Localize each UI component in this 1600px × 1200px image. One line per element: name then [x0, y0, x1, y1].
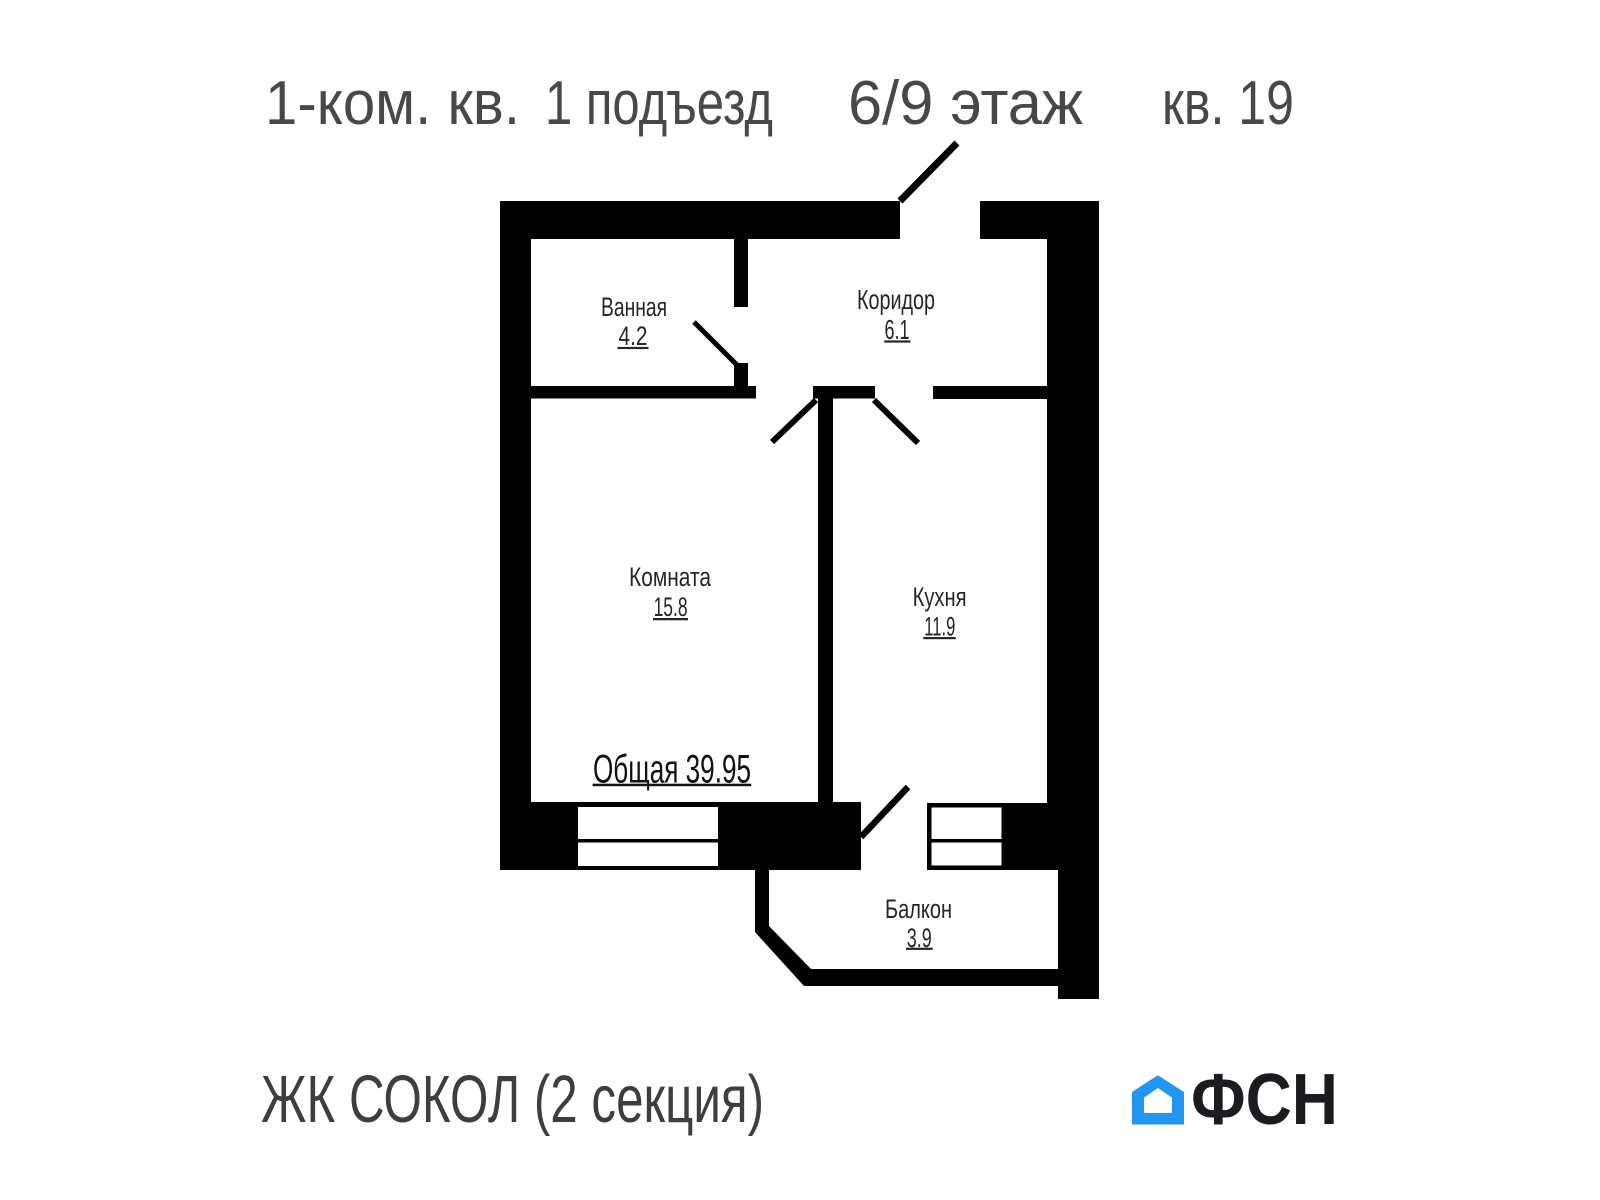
svg-text:ФСН: ФСН [1191, 1060, 1338, 1140]
svg-text:1-ком. кв.: 1-ком. кв. [265, 69, 520, 138]
svg-text:ЖК СОКОЛ (2 секция): ЖК СОКОЛ (2 секция) [261, 1062, 764, 1137]
svg-text:Балкон: Балкон [885, 894, 952, 924]
svg-text:кв. 19: кв. 19 [1162, 69, 1294, 138]
svg-text:11.9: 11.9 [924, 611, 955, 641]
svg-text:Коридор: Коридор [857, 284, 935, 315]
svg-text:Кухня: Кухня [913, 582, 967, 612]
svg-text:Комната: Комната [629, 562, 712, 592]
svg-text:6/9 этаж: 6/9 этаж [848, 69, 1084, 138]
svg-text:4.2: 4.2 [619, 321, 648, 351]
svg-text:15.8: 15.8 [654, 592, 688, 622]
svg-text:1 подъезд: 1 подъезд [545, 69, 773, 138]
svg-text:6.1: 6.1 [885, 314, 910, 345]
svg-text:Ванная: Ванная [601, 292, 667, 322]
